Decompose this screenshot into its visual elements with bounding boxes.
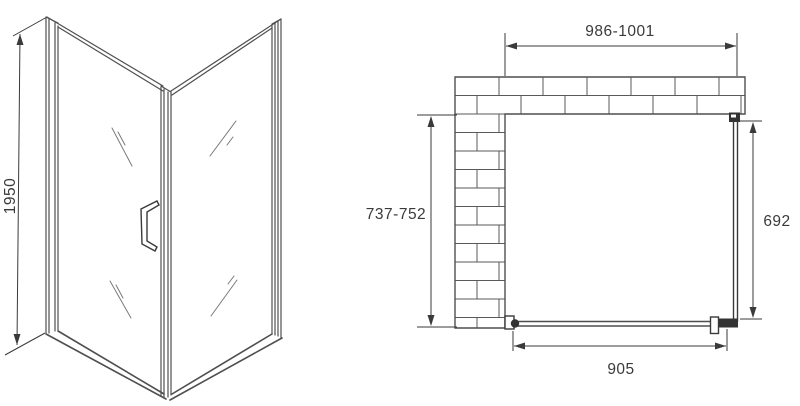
side-panel-plan [729,113,740,322]
door-extension-lines [513,329,727,351]
arrow-down-icon [14,334,21,345]
arrow-right-icon [725,43,736,50]
side-panel-dim-label: 692 [763,213,790,230]
arrow-up-icon [428,116,435,127]
door-glass-shine-upper [112,128,132,166]
arrow-left-icon [506,43,517,50]
side-glass-shine-upper [210,121,236,156]
door-handle [141,201,159,251]
height-dimension: 1950 [2,17,47,355]
arrow-up-icon [750,122,757,133]
depth-dimension: 737-752 [366,115,457,327]
door-width-label: 905 [607,361,634,378]
technical-drawing: 1950 [0,0,800,406]
brick-wall [455,77,745,328]
height-dim-label: 1950 [2,178,19,214]
glass-shine-marks [110,121,237,318]
door-plan [505,316,738,334]
perspective-view: 1950 [2,17,282,400]
door-top-edge [47,17,163,91]
side-panel-bottom-edge [170,334,282,400]
door-glass-line [512,322,736,327]
side-panel-dimension: 692 [740,121,791,319]
arrow-down-icon [750,307,757,318]
wall-bracket-notch [731,115,736,118]
side-glass-panel [734,121,738,321]
arrow-up-icon [17,34,24,45]
pivot-hinge [511,319,519,327]
plan-view: 986-1001 737-752 692 905 [366,23,791,378]
depth-dim-label: 737-752 [366,206,426,223]
side-extension-lines [740,121,762,319]
arrow-down-icon [428,315,435,326]
opening-width-label: 986-1001 [585,23,655,40]
door-handle-plan [711,317,719,334]
opening-width-dimension: 986-1001 [505,23,737,76]
corner-post-profile [161,86,171,397]
drawing-canvas: 1950 [0,0,800,406]
arrow-right-icon [715,343,726,350]
hinge-frame-profile [46,17,58,333]
door-bottom-edge [46,331,166,399]
corner-connector [719,319,738,328]
door-glass-shine-lower [110,281,131,318]
wall-frame-profile [272,19,281,338]
side-glass-shine-lower [211,276,237,316]
door-width-dimension: 905 [513,329,727,378]
arrow-left-icon [514,343,525,350]
side-panel-top-edge [171,19,281,95]
